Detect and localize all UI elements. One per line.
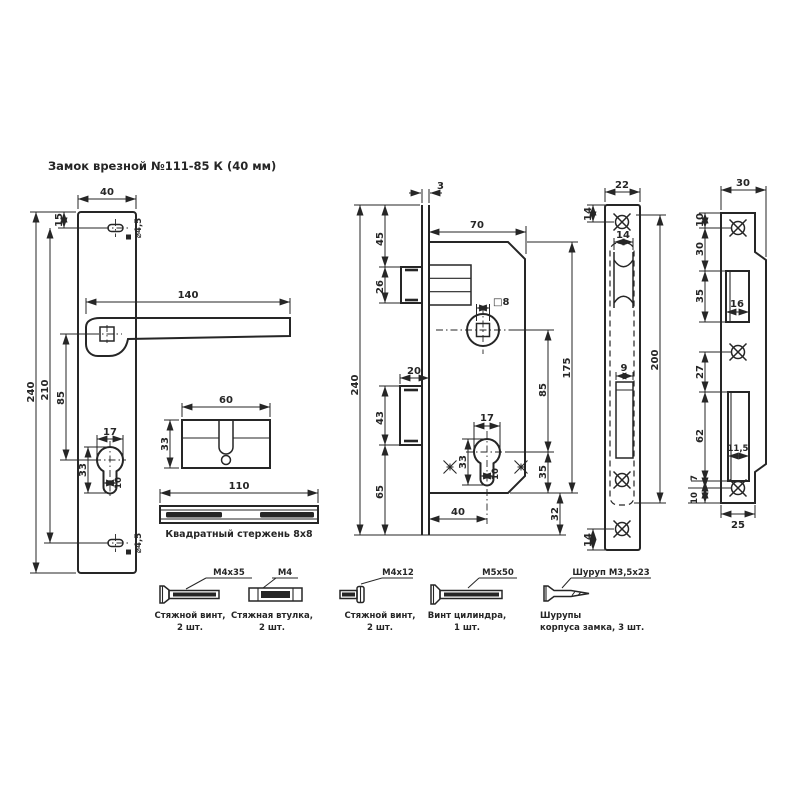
latch-mechanism [429,265,471,305]
dim-body-width: 70 [470,220,484,231]
dim-faceplate-thickness: 3 [437,181,444,192]
dim-bottom-screw-offset: 14 [583,533,594,547]
dim-top-to-latch: 45 [375,232,386,246]
lock-body-view: 3 240 45 26 43 65 20 70 □8 17 33 10 8 [350,181,578,535]
hardware-item-m4x35: М4х35 Стяжной винт, 2 шт. [154,568,252,633]
handle-plate-outline [78,212,136,573]
faceplate-screw-top [614,214,631,231]
latch-arc [614,260,633,267]
dim-faceplate-width: 22 [615,180,629,191]
hardware-caption: Стяжной винт, [344,611,415,621]
countersink-mark [126,550,131,555]
strike-screw-mid [730,344,747,361]
dim-strike-top-width: 30 [736,178,750,189]
dim-latch-opening-height: 35 [695,289,706,303]
hardware-item-wood-screw: Шуруп М3,5х23 Шурупы корпуса замка, 3 шт… [540,568,651,633]
dim-cyl-width: 17 [103,427,117,438]
dim-latch-opening-width: 16 [730,299,744,310]
hardware-spec: М4х12 [382,568,414,578]
latch-arc [614,296,633,303]
dim-opening-gap: 27 [695,365,706,379]
faceplate-view: 22 14 14 9 200 14 [583,180,666,550]
dim-latch-height: 26 [375,280,386,294]
cam-circle [222,456,231,465]
lock-body-outline [429,242,525,493]
dim-hole-top: ⌀4,5 [134,218,144,238]
cylinder-view: 60 33 [160,395,270,468]
deadbolt-head [400,386,422,445]
dim-bolt-to-screw: 7 [690,475,700,481]
dim-rod-length: 110 [229,481,250,492]
dim-plate-width: 40 [100,187,114,198]
dim-body-cyl-width: 17 [480,413,494,424]
hardware-caption: Шурупы [540,611,581,621]
knurl-band [260,512,314,518]
faceplate-screw-bottom [614,521,631,538]
dim-bolt-slot-width: 9 [621,363,628,374]
cylinder-body [182,420,270,468]
hardware-item-m4x12: М4х12 Стяжной винт, 2 шт. [340,568,416,633]
dim-body-cyl-slot: 10 [491,468,501,480]
dim-bottom-offset: 65 [375,485,386,499]
dim-strike-bottom-width: 25 [731,520,745,531]
faceplate-outline [605,205,640,550]
hardware-caption: 2 шт. [177,623,203,633]
bolt-slot [616,382,633,458]
dim-bottom-margin: 32 [550,507,561,521]
dim-handle-to-cyl: 85 [56,391,67,405]
dim-faceplate-length: 200 [650,350,661,371]
dim-bolt-opening-width: 11,5 [728,444,749,454]
dim-cyl-slot: 10 [114,477,124,489]
dim-screw-to-bottom: 10 [690,492,700,504]
dim-deadbolt-height: 43 [375,411,386,425]
dim-cylinder-length: 60 [219,395,233,406]
dim-screw-to-opening: 30 [695,242,706,256]
dim-backset: 40 [451,507,465,518]
countersink-mark [126,235,131,240]
dim-body-cyl-height: 33 [458,455,469,469]
key-slot [219,420,233,454]
dim-screw-span: 210 [40,380,51,401]
hardware-caption: 1 шт. [454,623,480,633]
latch-bolt-head [401,267,422,303]
rod-caption: Квадратный стержень 8х8 [165,529,313,540]
dim-cyl-height: 33 [78,463,89,477]
dim-bolt-opening-height: 62 [695,429,706,443]
dim-cyl-to-bottom: 35 [538,465,549,479]
dim-deadbolt-throw: 20 [407,366,421,377]
dim-faceplate-length: 240 [350,375,361,396]
hardware-caption: корпуса замка, 3 шт. [540,623,644,633]
hardware-caption: 2 шт. [367,623,393,633]
hardware-spec: Шуруп М3,5х23 [572,568,649,578]
lock-technical-drawing: Замок врезной №111-85 К (40 мм) ⌀4,5 ⌀4,… [0,0,800,800]
faceplate-screw-mid [614,472,631,489]
hardware-item-m5x50: М5х50 Винт цилиндра, 1 шт. [428,568,517,633]
hardware-caption: 2 шт. [259,623,285,633]
knurl-band [166,512,222,518]
hardware-spec: М4 [278,568,292,578]
dim-cylinder-height: 33 [160,437,171,451]
hardware-caption: Винт цилиндра, [428,611,506,621]
square-rod-view: 110 Квадратный стержень 8х8 [160,481,318,540]
dim-top-screw-offset: 10 [695,213,706,227]
strike-screw-top [730,220,747,237]
dim-spindle-to-cyl: 85 [538,383,549,397]
dim-body-length: 175 [562,358,573,379]
strike-screw-bottom [730,480,747,497]
dim-handle-length: 140 [178,290,199,301]
dim-top-offset: 15 [54,213,65,227]
dim-hole-bottom: ⌀4,5 [134,533,144,553]
mounting-hole [444,461,457,474]
handle-plate-view: ⌀4,5 ⌀4,5 40 15 240 210 85 140 17 [26,187,290,573]
dim-plate-height: 240 [26,382,37,403]
dim-spindle-square: □8 [493,297,509,308]
drawing-title: Замок врезной №111-85 К (40 мм) [48,159,276,173]
hardware-spec: М5х50 [482,568,514,578]
lever-handle [86,318,290,356]
dim-top-screw-offset: 14 [583,207,594,221]
hardware-spec: М4х35 [213,568,245,578]
hardware-row: М4х35 Стяжной винт, 2 шт. М4 Стяжная вту… [154,568,651,633]
hardware-caption: Стяжной винт, [154,611,225,621]
dim-latch-width: 14 [616,230,630,241]
strike-plate-view: 30 10 30 35 27 62 7 10 16 11,5 25 [688,178,766,531]
hardware-caption: Стяжная втулка, [231,611,313,621]
